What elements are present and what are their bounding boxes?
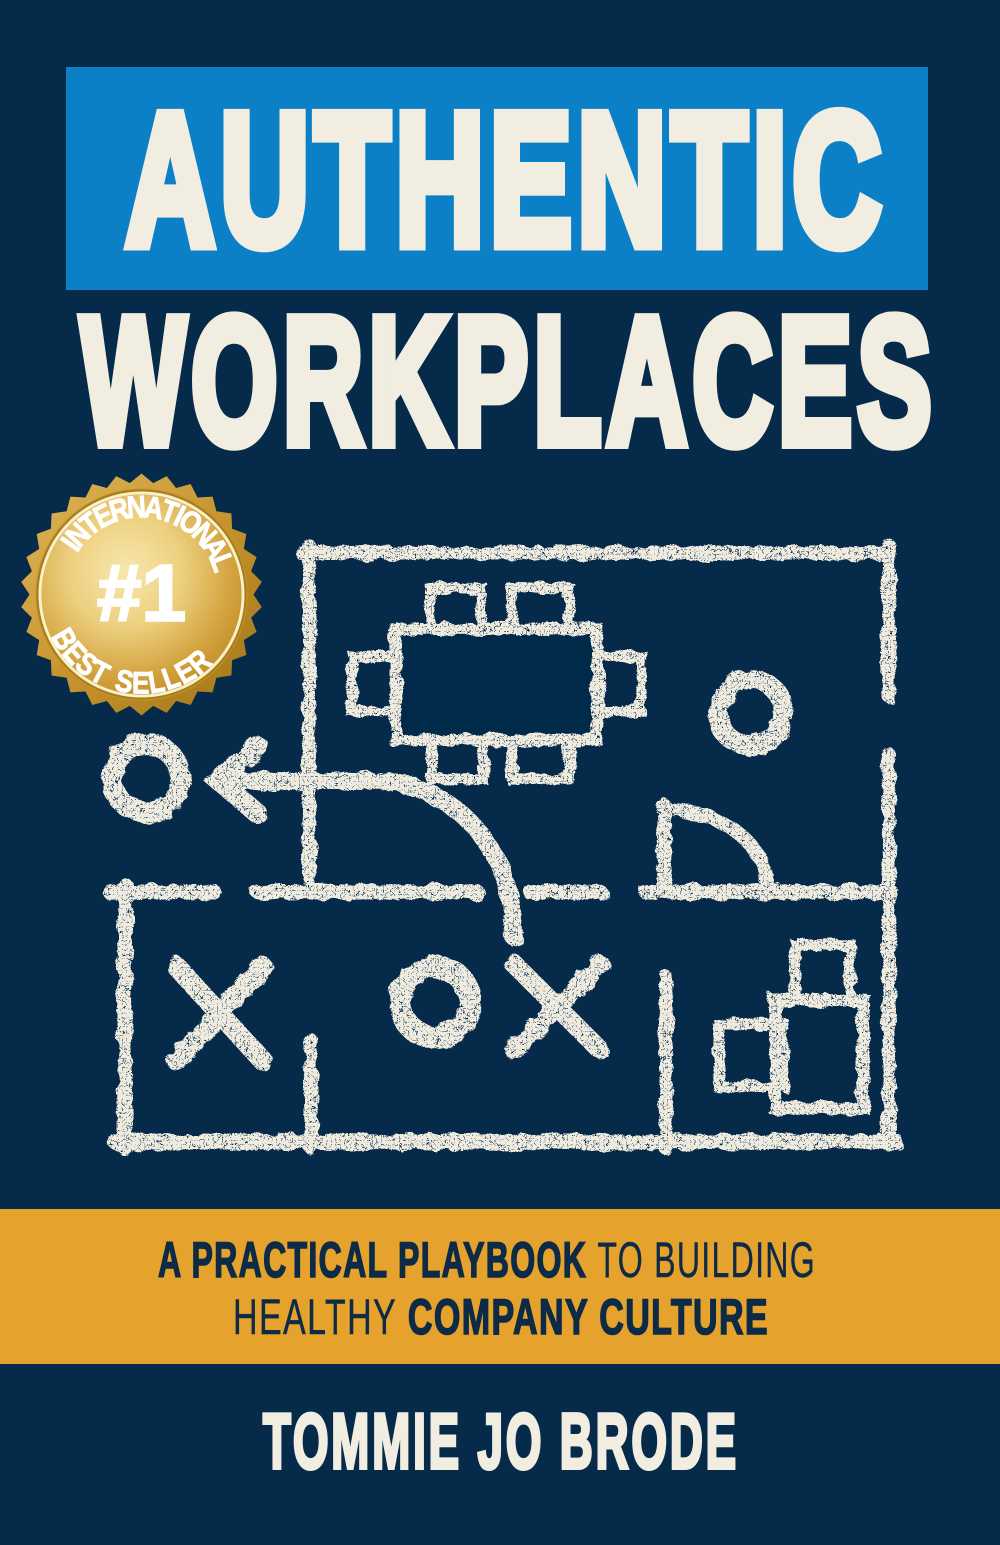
svg-text:AUTHENTIC: AUTHENTIC <box>126 75 887 284</box>
svg-text:#1: #1 <box>97 549 186 638</box>
svg-text:HEALTHY COMPANY CULTURE: HEALTHY COMPANY CULTURE <box>233 1289 769 1345</box>
svg-text:TOMMIE JO BRODE: TOMMIE JO BRODE <box>263 1397 739 1485</box>
svg-text:A PRACTICAL PLAYBOOK TO BUILDI: A PRACTICAL PLAYBOOK TO BUILDING <box>158 1232 816 1288</box>
svg-text:WORKPLACES: WORKPLACES <box>81 281 937 482</box>
